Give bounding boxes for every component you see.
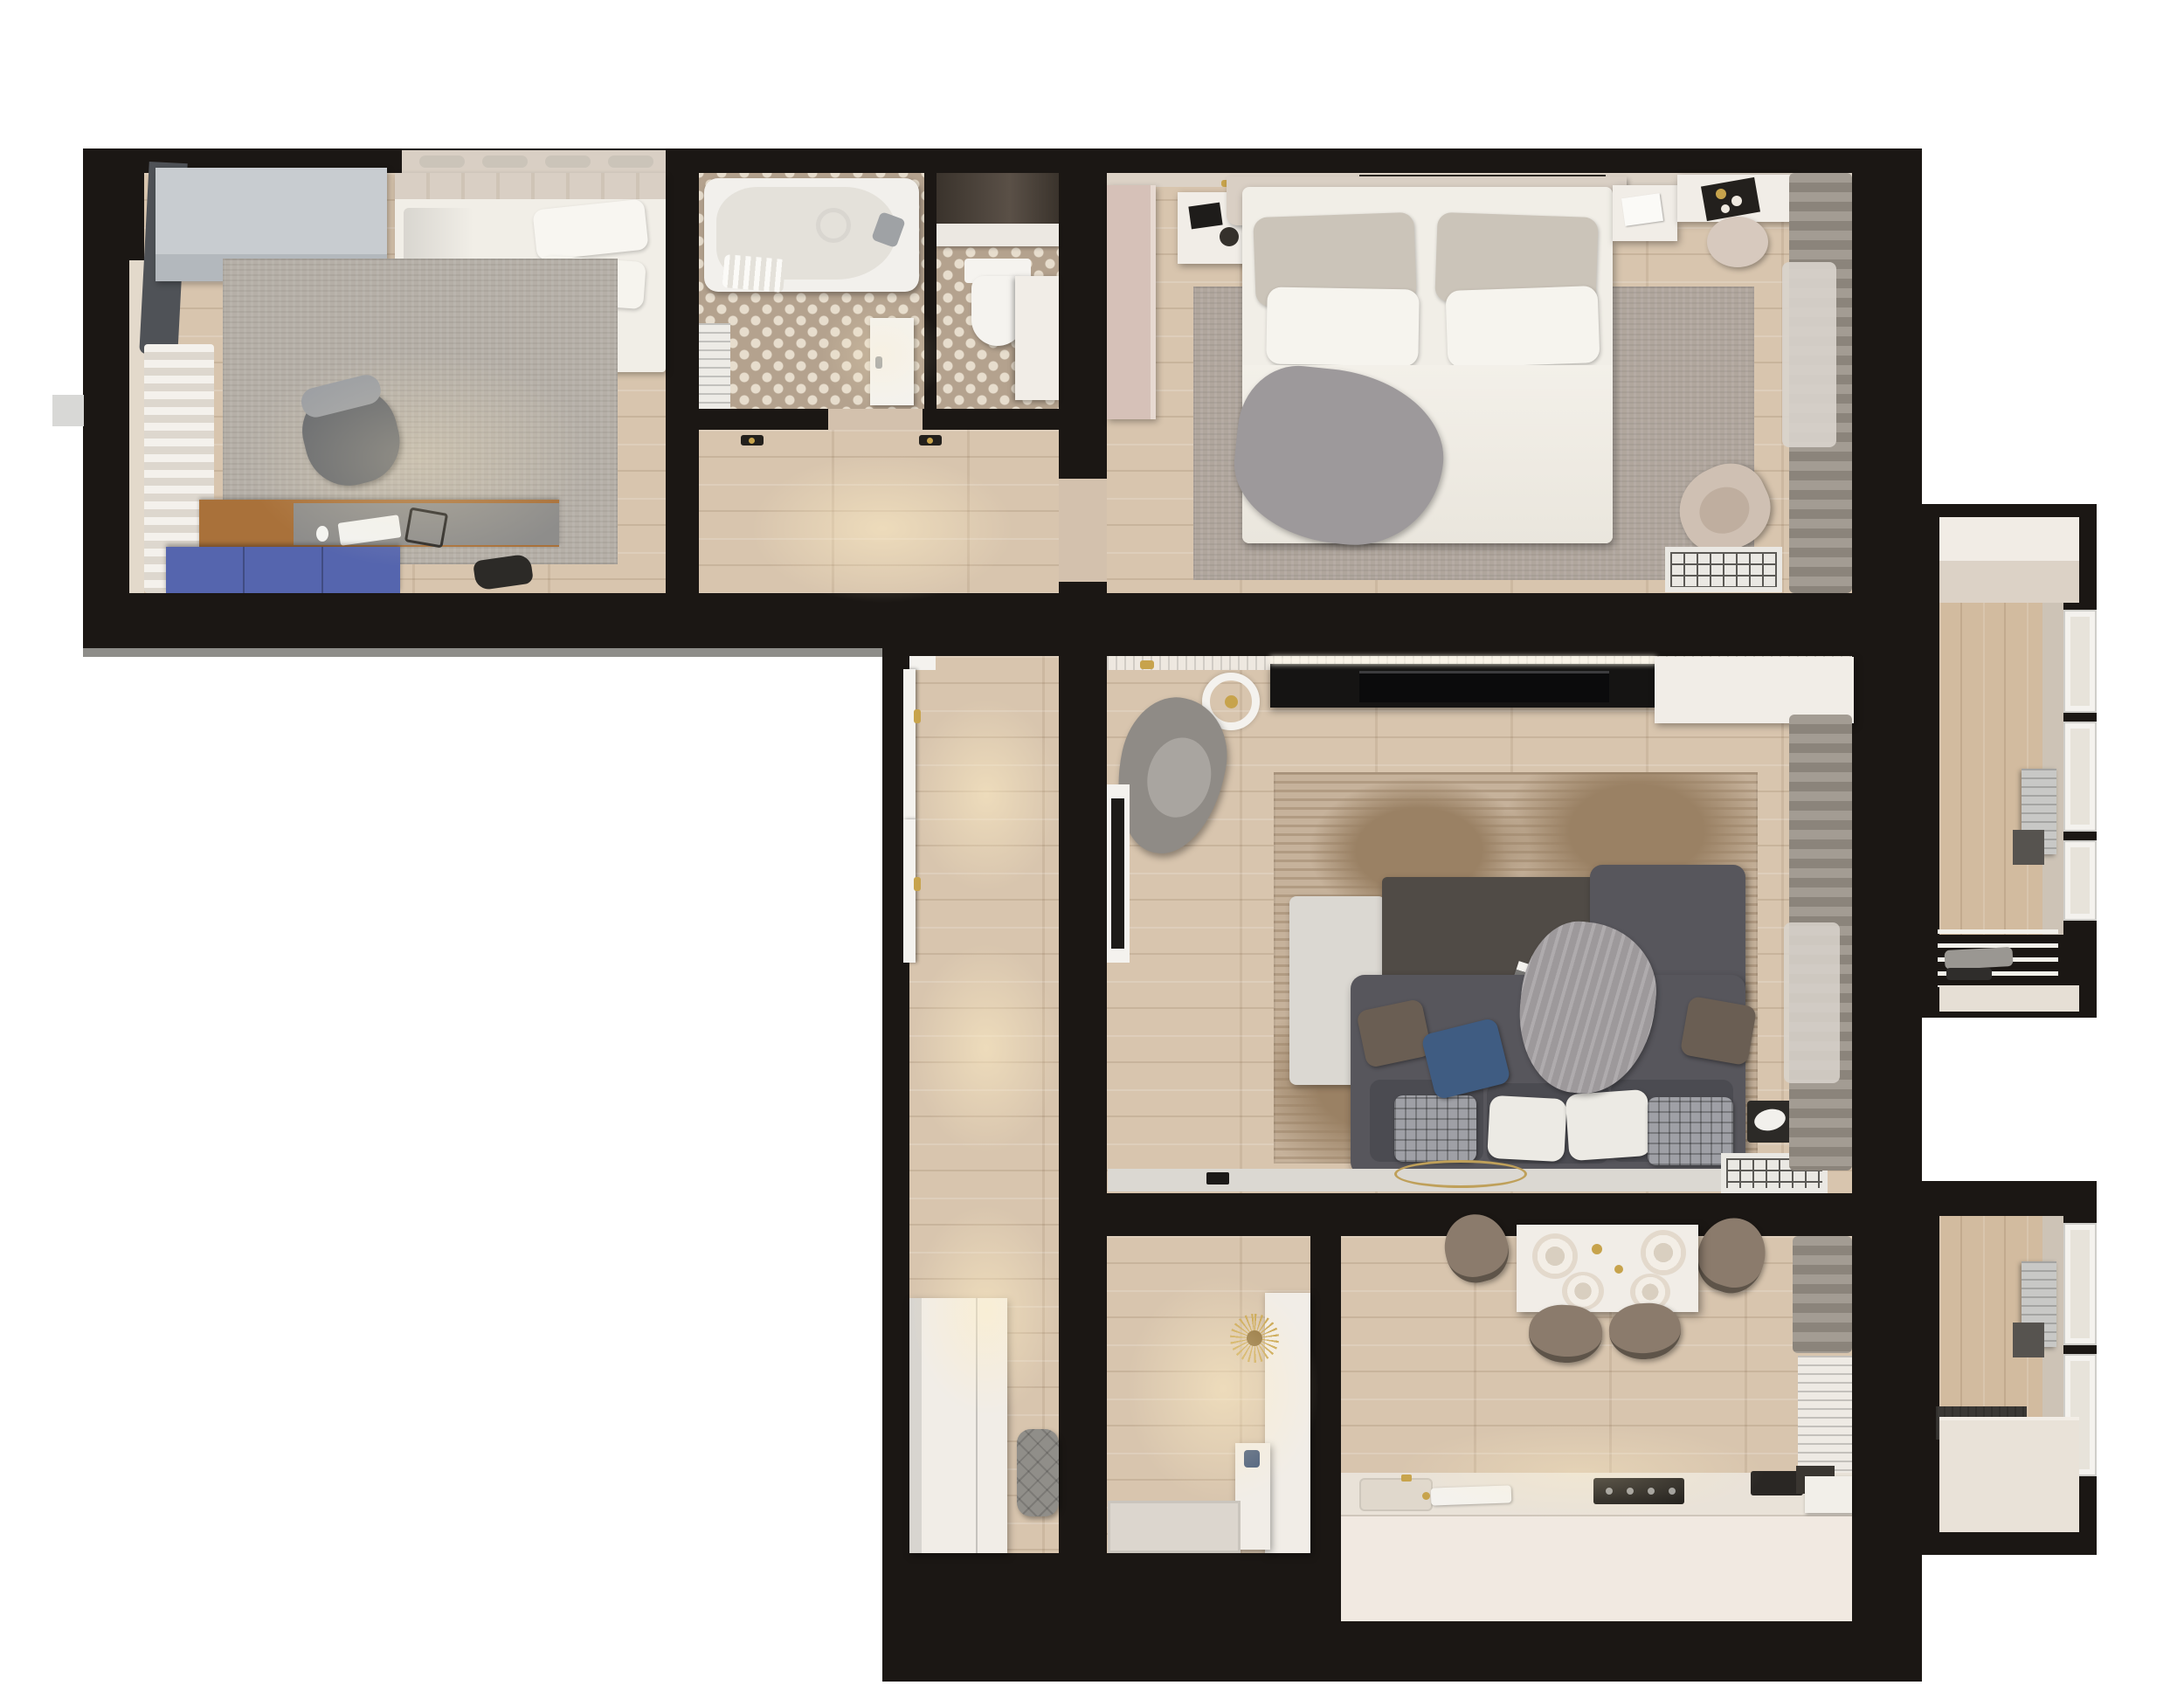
kitchen-counter-top <box>1341 1473 1852 1516</box>
corridor-door-1 <box>903 669 916 819</box>
sofa-pillow-white-2 <box>1565 1089 1651 1161</box>
shelf-cushion-1 <box>419 155 465 168</box>
office-desk-decor <box>404 507 448 548</box>
bathroom-door-handle <box>875 356 882 369</box>
kitchen-cooktop <box>1593 1478 1684 1504</box>
living-armchair-seat <box>1140 732 1219 824</box>
kitchen-appliance <box>1805 1476 1852 1513</box>
bedroom-lounge-chair-seat <box>1692 479 1758 542</box>
office-blue-drawers <box>166 547 400 593</box>
office-bed-headboard <box>395 173 666 199</box>
balcony-top-ac-dark <box>2013 830 2044 865</box>
wall-edge-highlight <box>83 648 882 657</box>
balcony-drying-rack <box>1938 929 2058 987</box>
room-office <box>144 173 666 593</box>
kitchen-tray <box>1751 1471 1803 1495</box>
bedroom-pillow-white-right <box>1446 286 1600 368</box>
office-desk <box>199 500 559 547</box>
living-curtains <box>1789 715 1852 1171</box>
living-sideboard <box>1655 657 1854 723</box>
exterior-unit-notch <box>52 395 84 426</box>
living-curtain-light-block <box>1784 922 1840 1083</box>
sofa-pillow-brown-right <box>1680 996 1758 1067</box>
balcony-top-window-1 <box>2063 610 2097 713</box>
hall-spotlight-2 <box>919 435 942 445</box>
room-kitchen <box>1341 1236 1852 1621</box>
bathtub <box>704 178 919 292</box>
sofa-pillow-white-1 <box>1487 1095 1567 1163</box>
entry-console <box>1235 1443 1270 1550</box>
wc-tall-cabinet <box>1015 276 1059 400</box>
balcony-top-window-2 <box>2063 722 2097 832</box>
balcony-top-bottom-band <box>1939 985 2079 1012</box>
living-ledge-handle <box>1206 1172 1229 1185</box>
bedroom-bed <box>1227 176 1627 543</box>
living-fireplace-screen <box>1111 798 1124 949</box>
room-wc <box>936 173 1059 409</box>
dining-plate-2 <box>1641 1230 1686 1275</box>
shelf-cushion-3 <box>545 155 591 168</box>
bedroom-nightstand-right <box>1613 185 1677 241</box>
office-bed-pillow-1 <box>532 198 648 260</box>
balcony-top-window-2-glass <box>2070 729 2090 825</box>
floor-plan-canvas <box>0 0 2184 1706</box>
dining-deco-gold-1 <box>1592 1244 1602 1254</box>
room-bathroom <box>699 173 924 409</box>
room-balcony-top <box>1922 504 2097 1018</box>
room-entry <box>1107 1236 1310 1553</box>
nightstand-right-book <box>1621 193 1663 226</box>
tv-screen <box>1359 671 1609 702</box>
wc-shelf <box>936 224 1059 246</box>
living-side-remote <box>1752 1107 1787 1134</box>
corridor-door-2-handle <box>914 877 921 891</box>
cooktop-knob-4 <box>1669 1488 1676 1495</box>
living-tray-table <box>1394 1160 1527 1188</box>
balcony-top-window-3 <box>2063 840 2097 921</box>
bathroom-doorway-threshold <box>828 409 923 430</box>
bedroom-pouf <box>1707 217 1768 267</box>
bedroom-pillow-white-left <box>1266 287 1420 366</box>
entry-doormat <box>1108 1501 1241 1553</box>
room-master-bedroom <box>1107 173 1852 593</box>
tv-console <box>1270 664 1656 708</box>
balcony-bottom-window-1 <box>2063 1223 2097 1345</box>
balcony-top-face <box>1939 561 2079 603</box>
dining-deco-gold-2 <box>1614 1265 1623 1274</box>
vanity-cup-1 <box>1716 189 1726 199</box>
hall-spotlight-2-bulb <box>927 438 933 444</box>
bedroom-ac-grille <box>1665 547 1782 592</box>
hall-spotlight-1-bulb <box>749 438 755 444</box>
bathroom-radiator <box>699 323 730 409</box>
living-fireplace-panel <box>1107 784 1130 963</box>
vanity-cup-2 <box>1731 196 1742 206</box>
corridor-door-2 <box>903 819 916 963</box>
office-mouse <box>316 526 328 542</box>
bedroom-dresser <box>1107 185 1156 419</box>
office-headboard-shelf <box>402 150 666 173</box>
balcony-bottom-band <box>1939 1417 2079 1532</box>
drying-rack-clothes <box>1944 947 2013 970</box>
vanity-tray <box>1701 177 1760 221</box>
hall-bedroom-doorway <box>1059 479 1107 582</box>
corridor-door-1-handle <box>914 709 921 723</box>
bathtub-drain-ring <box>816 208 851 243</box>
balcony-bottom-ac-dark <box>2013 1323 2044 1357</box>
cooktop-knob-2 <box>1627 1488 1634 1495</box>
bedroom-sheer-curtain <box>1782 262 1836 447</box>
cooktop-knob-1 <box>1606 1488 1613 1495</box>
entry-sunburst-mirror <box>1230 1314 1279 1363</box>
bedroom-vanity-desk <box>1677 175 1794 222</box>
entry-sunburst-center <box>1247 1330 1262 1346</box>
shelf-cushion-2 <box>482 155 528 168</box>
hall-spotlight-1 <box>741 435 764 445</box>
inner-hall-floor <box>699 430 1059 593</box>
nightstand-left-book <box>1188 203 1222 230</box>
dining-plate-1 <box>1532 1233 1578 1279</box>
balcony-top-band <box>1939 517 2079 561</box>
room-living <box>1107 656 1852 1193</box>
kitchen-cabinet-front <box>1341 1516 1852 1621</box>
bathtub-towel <box>722 254 785 293</box>
kitchen-curtains <box>1793 1236 1852 1353</box>
sofa-pillow-plaid-left <box>1394 1095 1476 1162</box>
vanity-cup-3 <box>1721 204 1730 213</box>
corridor-pouf <box>1017 1429 1059 1516</box>
living-side-books <box>1747 1101 1794 1143</box>
shelf-cushion-4 <box>608 155 653 168</box>
kitchen-faucet <box>1401 1475 1412 1482</box>
bathroom-door <box>870 318 914 405</box>
balcony-top-window-1-glass <box>2070 617 2090 706</box>
cooktop-knob-3 <box>1648 1488 1655 1495</box>
living-spotlight <box>1140 660 1154 669</box>
balcony-top-window-3-glass <box>2070 847 2090 914</box>
corridor-wardrobe-seam <box>976 1298 978 1553</box>
entry-console-vase <box>1244 1450 1260 1468</box>
room-inner-hall <box>699 430 1059 593</box>
dining-table <box>1517 1225 1698 1312</box>
room-balcony-bottom <box>1922 1181 2097 1555</box>
kitchen-cutting-board <box>1431 1485 1512 1505</box>
wc-dark-cabinet <box>936 173 1059 225</box>
drying-rack-dark-item <box>1946 968 1992 980</box>
kitchen-board-handle <box>1422 1492 1430 1500</box>
tv-glow <box>1270 656 1656 665</box>
corridor-wardrobe <box>909 1298 1007 1553</box>
room-corridor <box>909 656 1059 1553</box>
corridor-door-frame-top <box>909 656 936 670</box>
balcony-bottom-window-1-glass <box>2070 1230 2090 1338</box>
living-chandelier-center <box>1225 695 1238 708</box>
